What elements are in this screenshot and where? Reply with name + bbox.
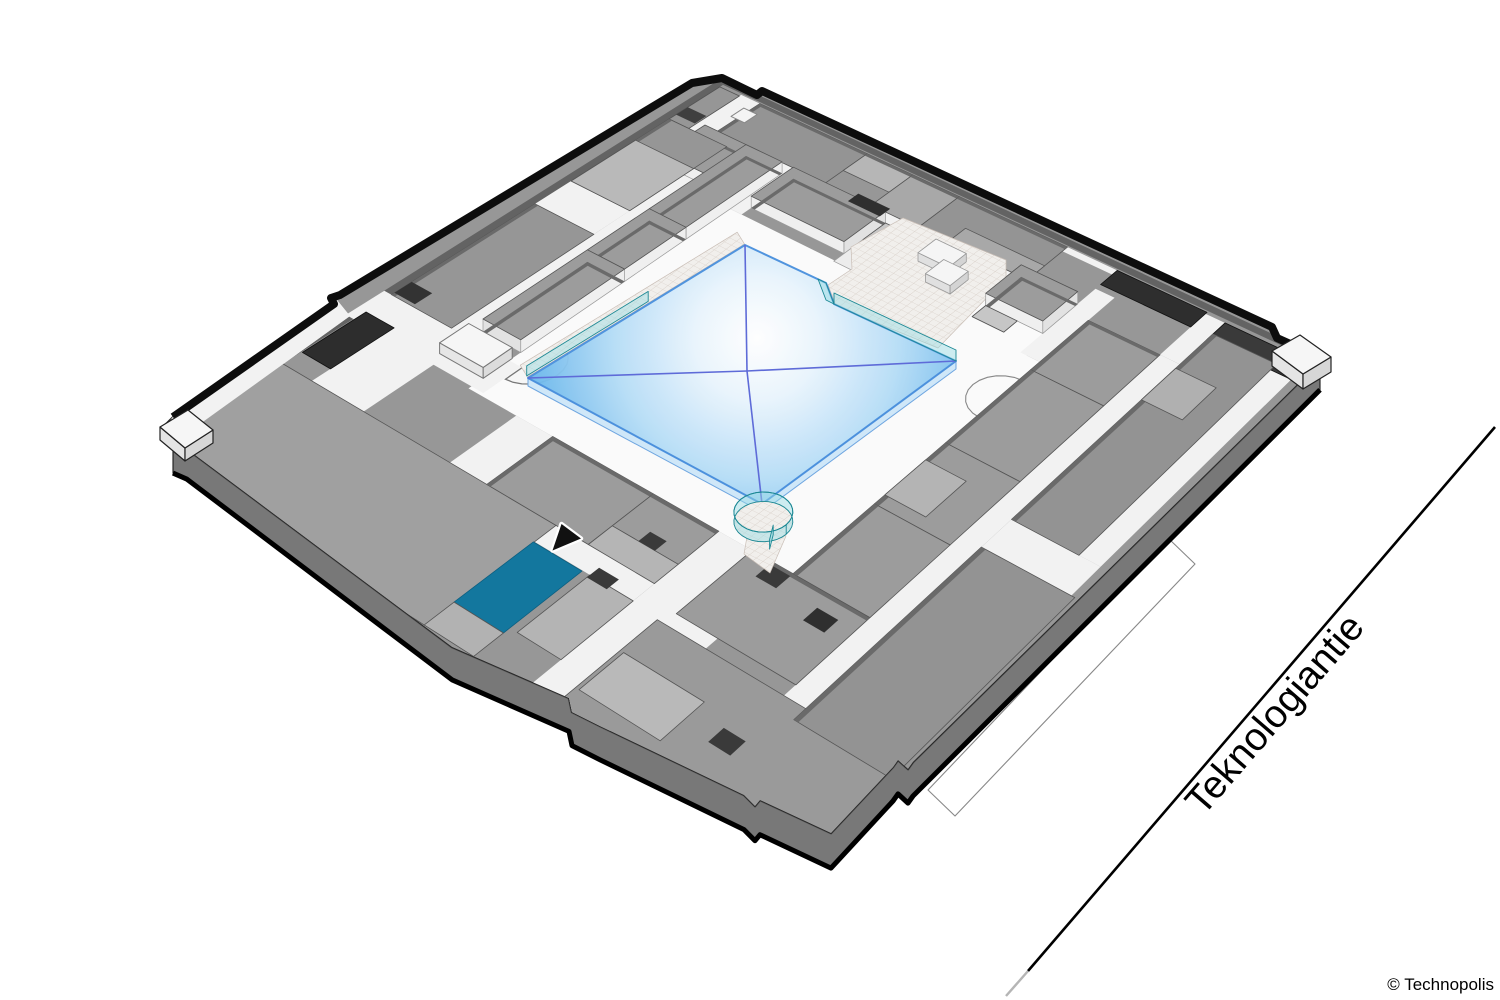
svg-text:© Technopolis: © Technopolis (1387, 975, 1494, 994)
